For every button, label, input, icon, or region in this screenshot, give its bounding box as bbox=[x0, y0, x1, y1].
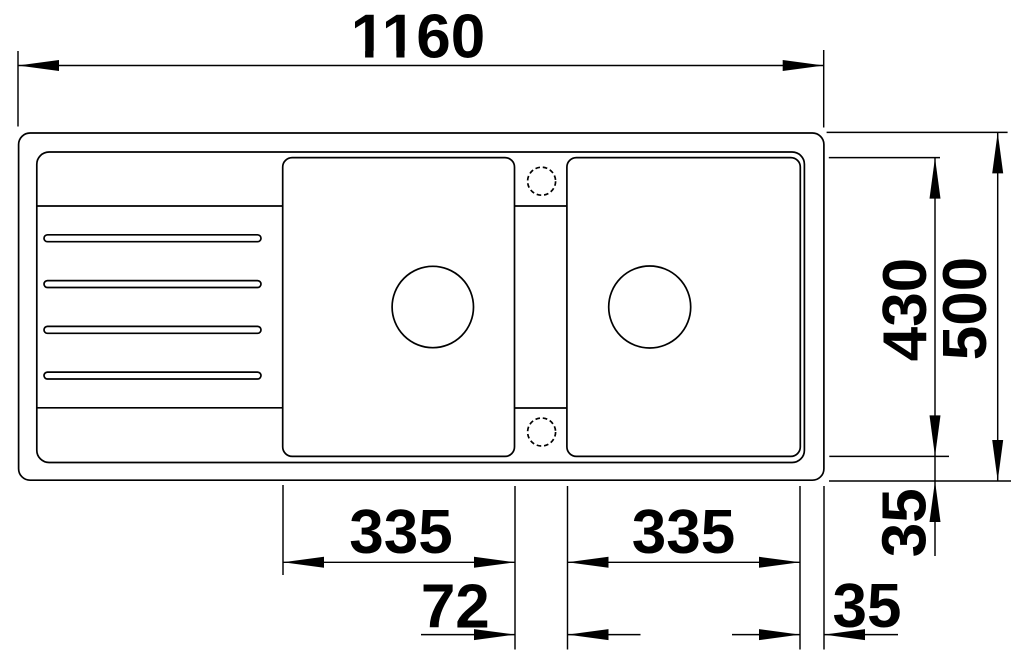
svg-text:335: 335 bbox=[349, 498, 452, 567]
svg-text:35: 35 bbox=[833, 572, 902, 641]
svg-text:335: 335 bbox=[632, 498, 735, 567]
svg-text:72: 72 bbox=[421, 572, 490, 641]
svg-text:500: 500 bbox=[931, 257, 1000, 360]
svg-text:1160: 1160 bbox=[351, 3, 486, 72]
svg-text:35: 35 bbox=[870, 488, 939, 557]
